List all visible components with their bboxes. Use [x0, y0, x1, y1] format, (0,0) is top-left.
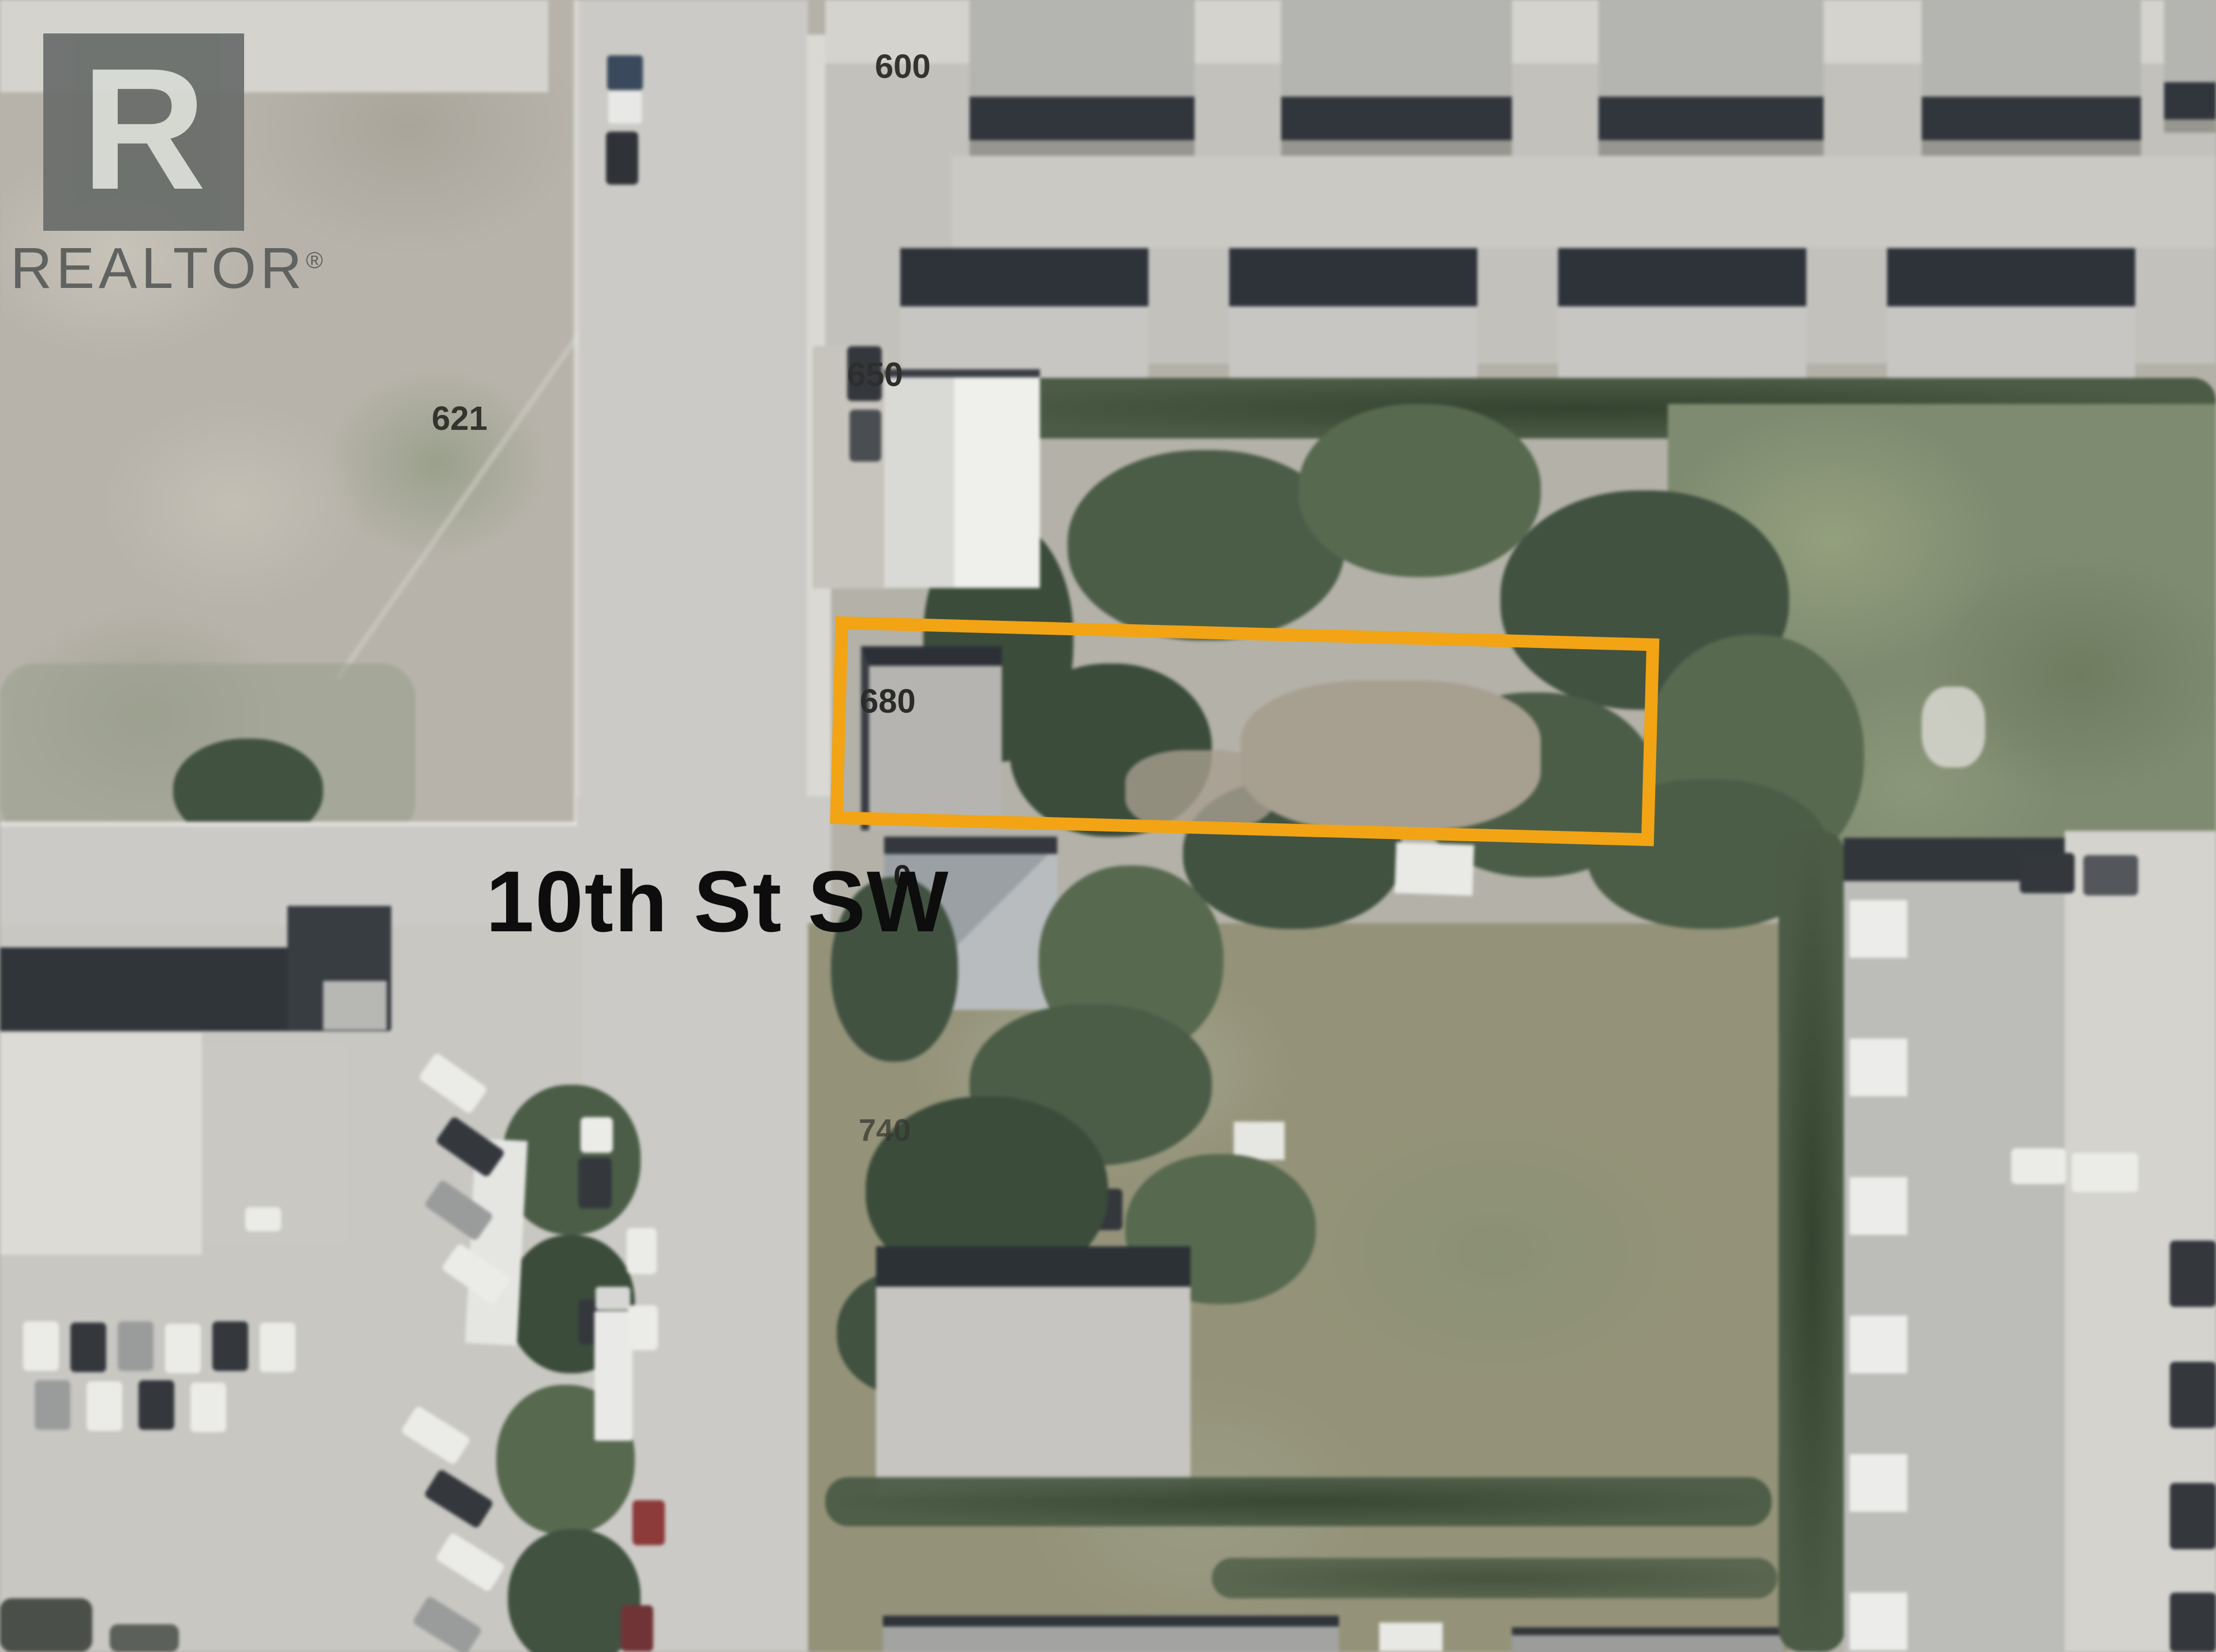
parcel-label-650: 650	[847, 355, 903, 394]
registered-trademark-symbol: ®	[306, 248, 323, 274]
parcel-label-680: 680	[860, 682, 916, 721]
aerial-map: R REALTOR® 600 621 650 680 0 740 10th St…	[0, 0, 2216, 1652]
parcel-label-740: 740	[859, 1112, 911, 1148]
street-label: 10th St SW	[486, 852, 949, 952]
realtor-logo-letter: R	[81, 42, 207, 215]
realtor-logo: R	[43, 33, 244, 231]
parcel-label-600: 600	[875, 47, 931, 86]
map-annotations: R REALTOR® 600 621 650 680 0 740 10th St…	[0, 0, 2216, 1652]
parcel-label-621: 621	[432, 399, 488, 438]
realtor-wordmark: REALTOR®	[10, 235, 323, 302]
property-highlight-rectangle	[830, 616, 1659, 846]
